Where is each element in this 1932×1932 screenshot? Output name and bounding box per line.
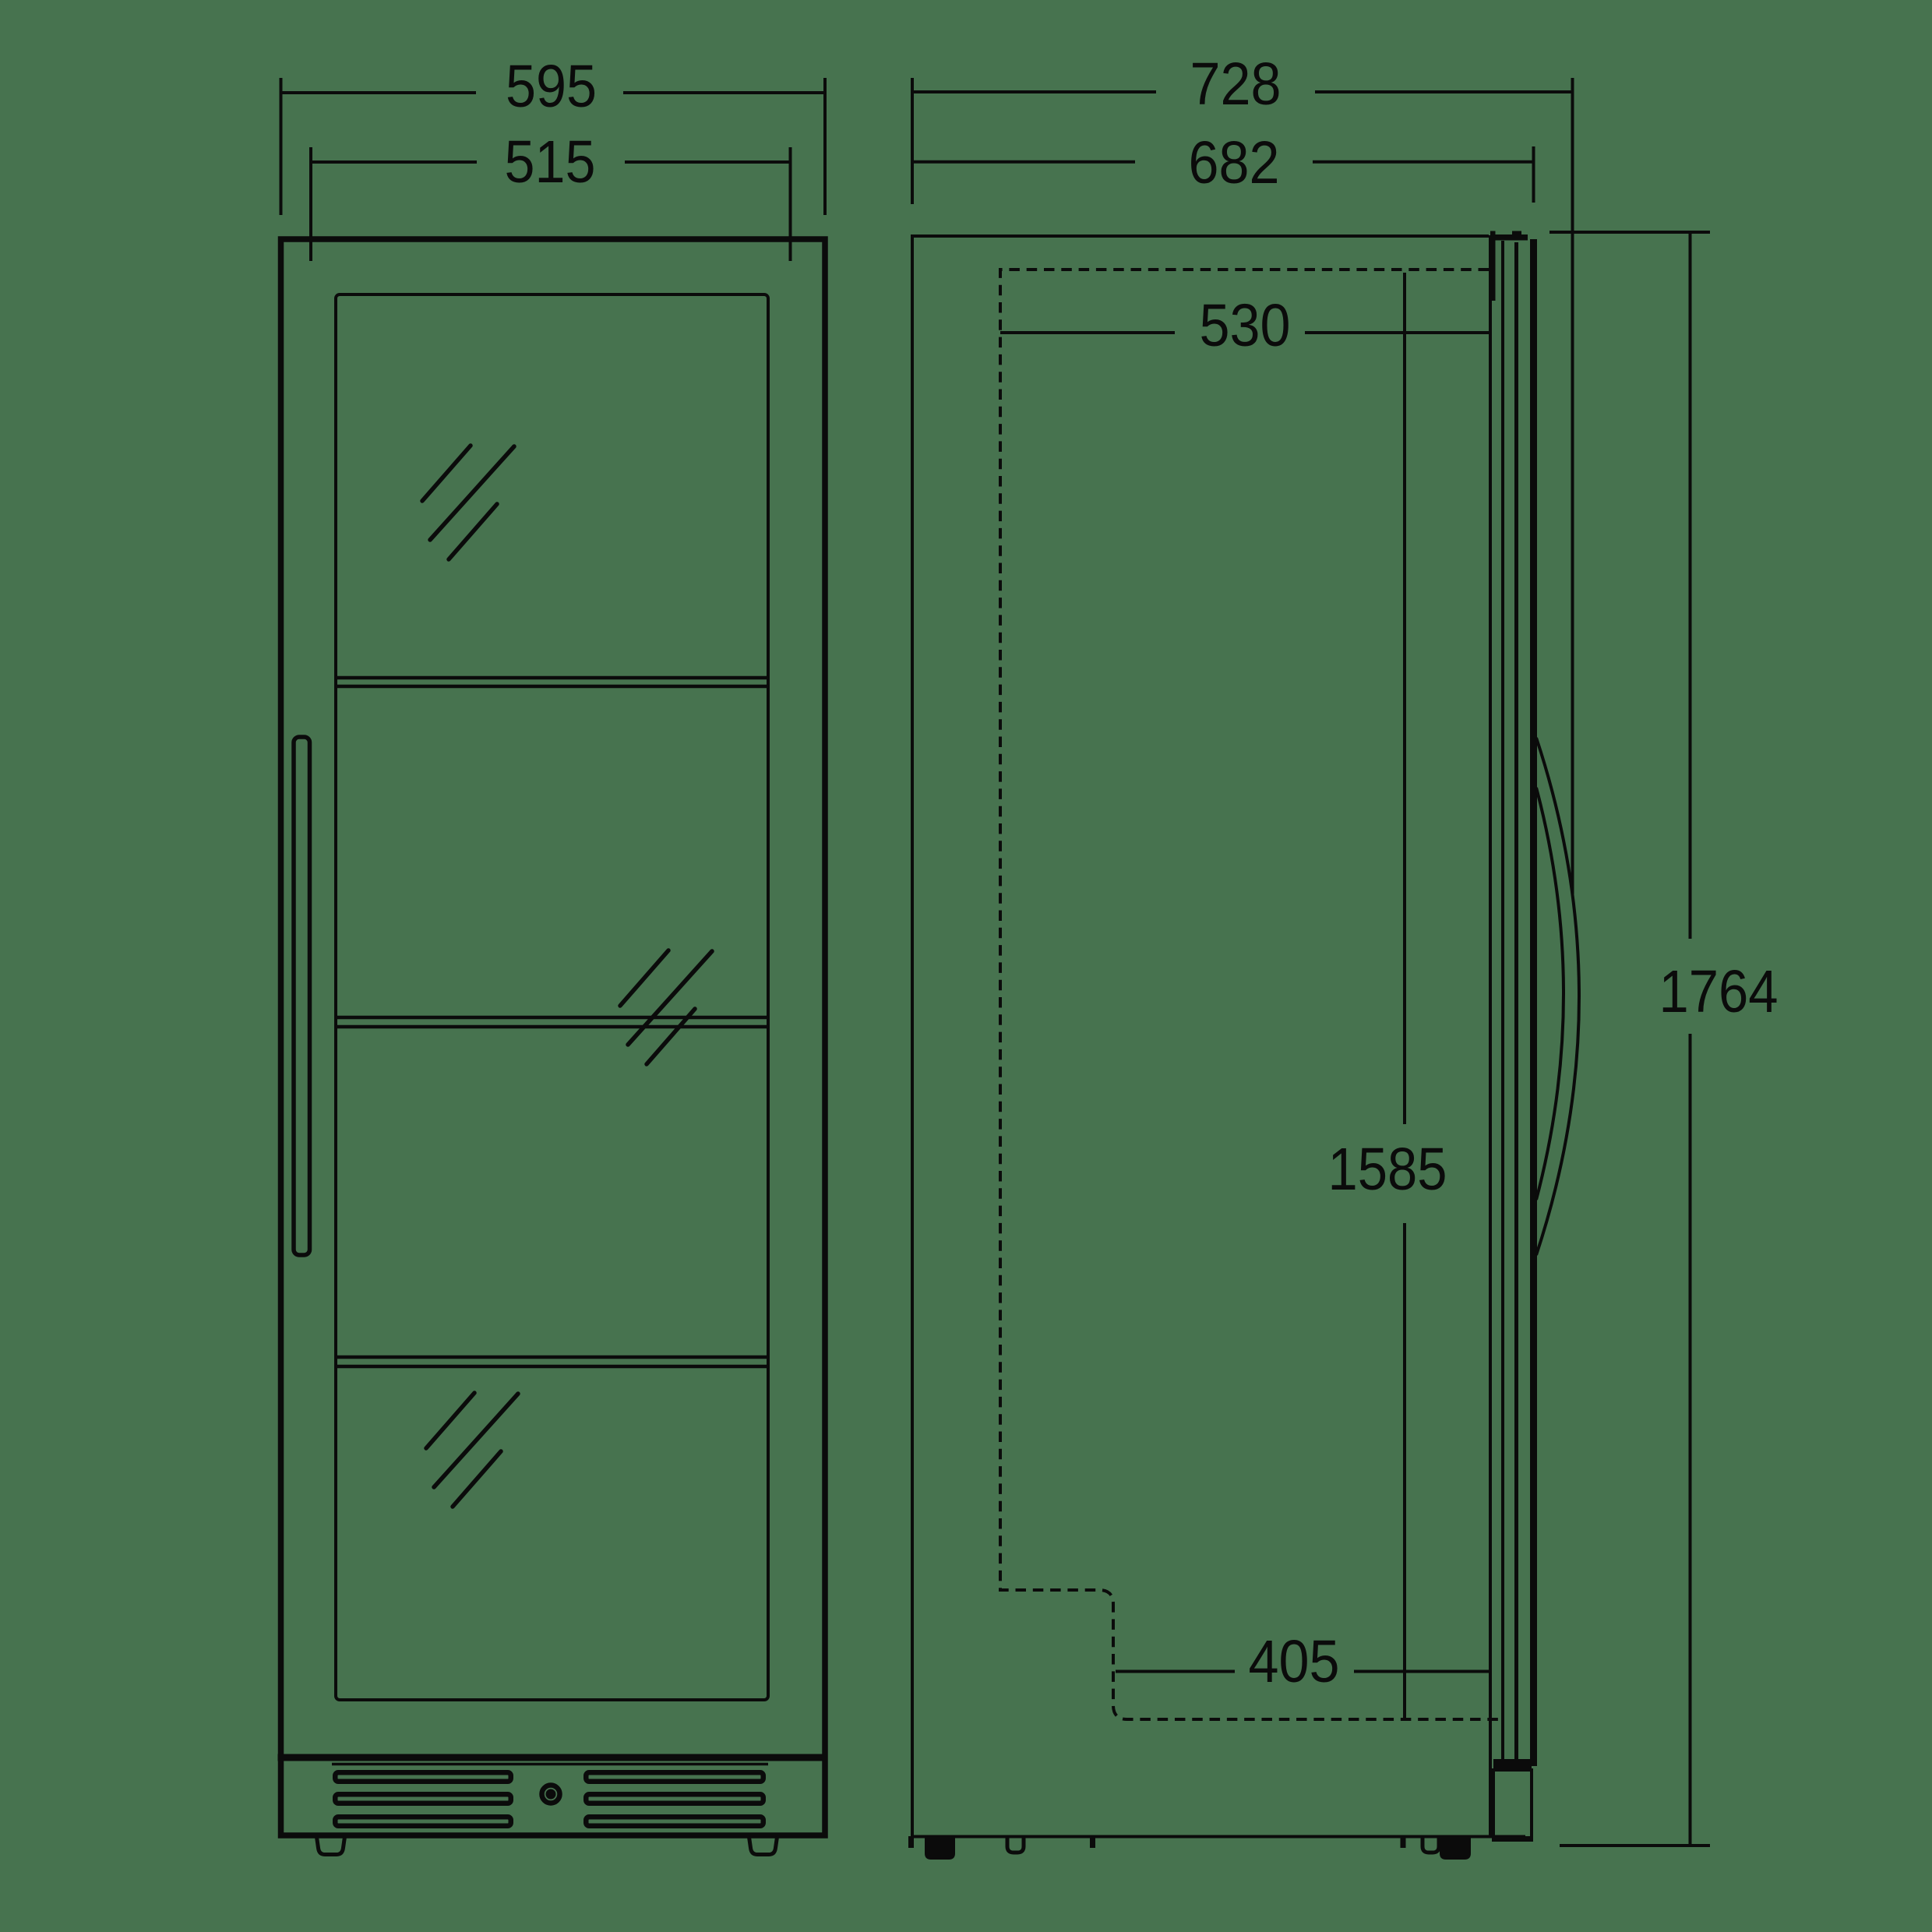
- svg-text:530: 530: [1200, 292, 1291, 359]
- svg-text:405: 405: [1249, 1628, 1340, 1695]
- svg-text:1585: 1585: [1328, 1136, 1447, 1203]
- svg-text:515: 515: [505, 129, 596, 196]
- svg-text:682: 682: [1189, 129, 1280, 196]
- svg-text:1764: 1764: [1659, 958, 1779, 1025]
- svg-text:728: 728: [1190, 51, 1282, 118]
- svg-text:595: 595: [506, 53, 597, 120]
